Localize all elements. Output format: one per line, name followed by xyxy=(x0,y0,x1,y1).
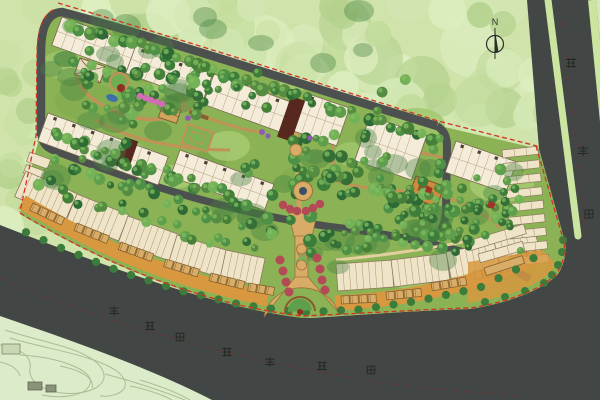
svg-text:N: N xyxy=(492,17,499,27)
